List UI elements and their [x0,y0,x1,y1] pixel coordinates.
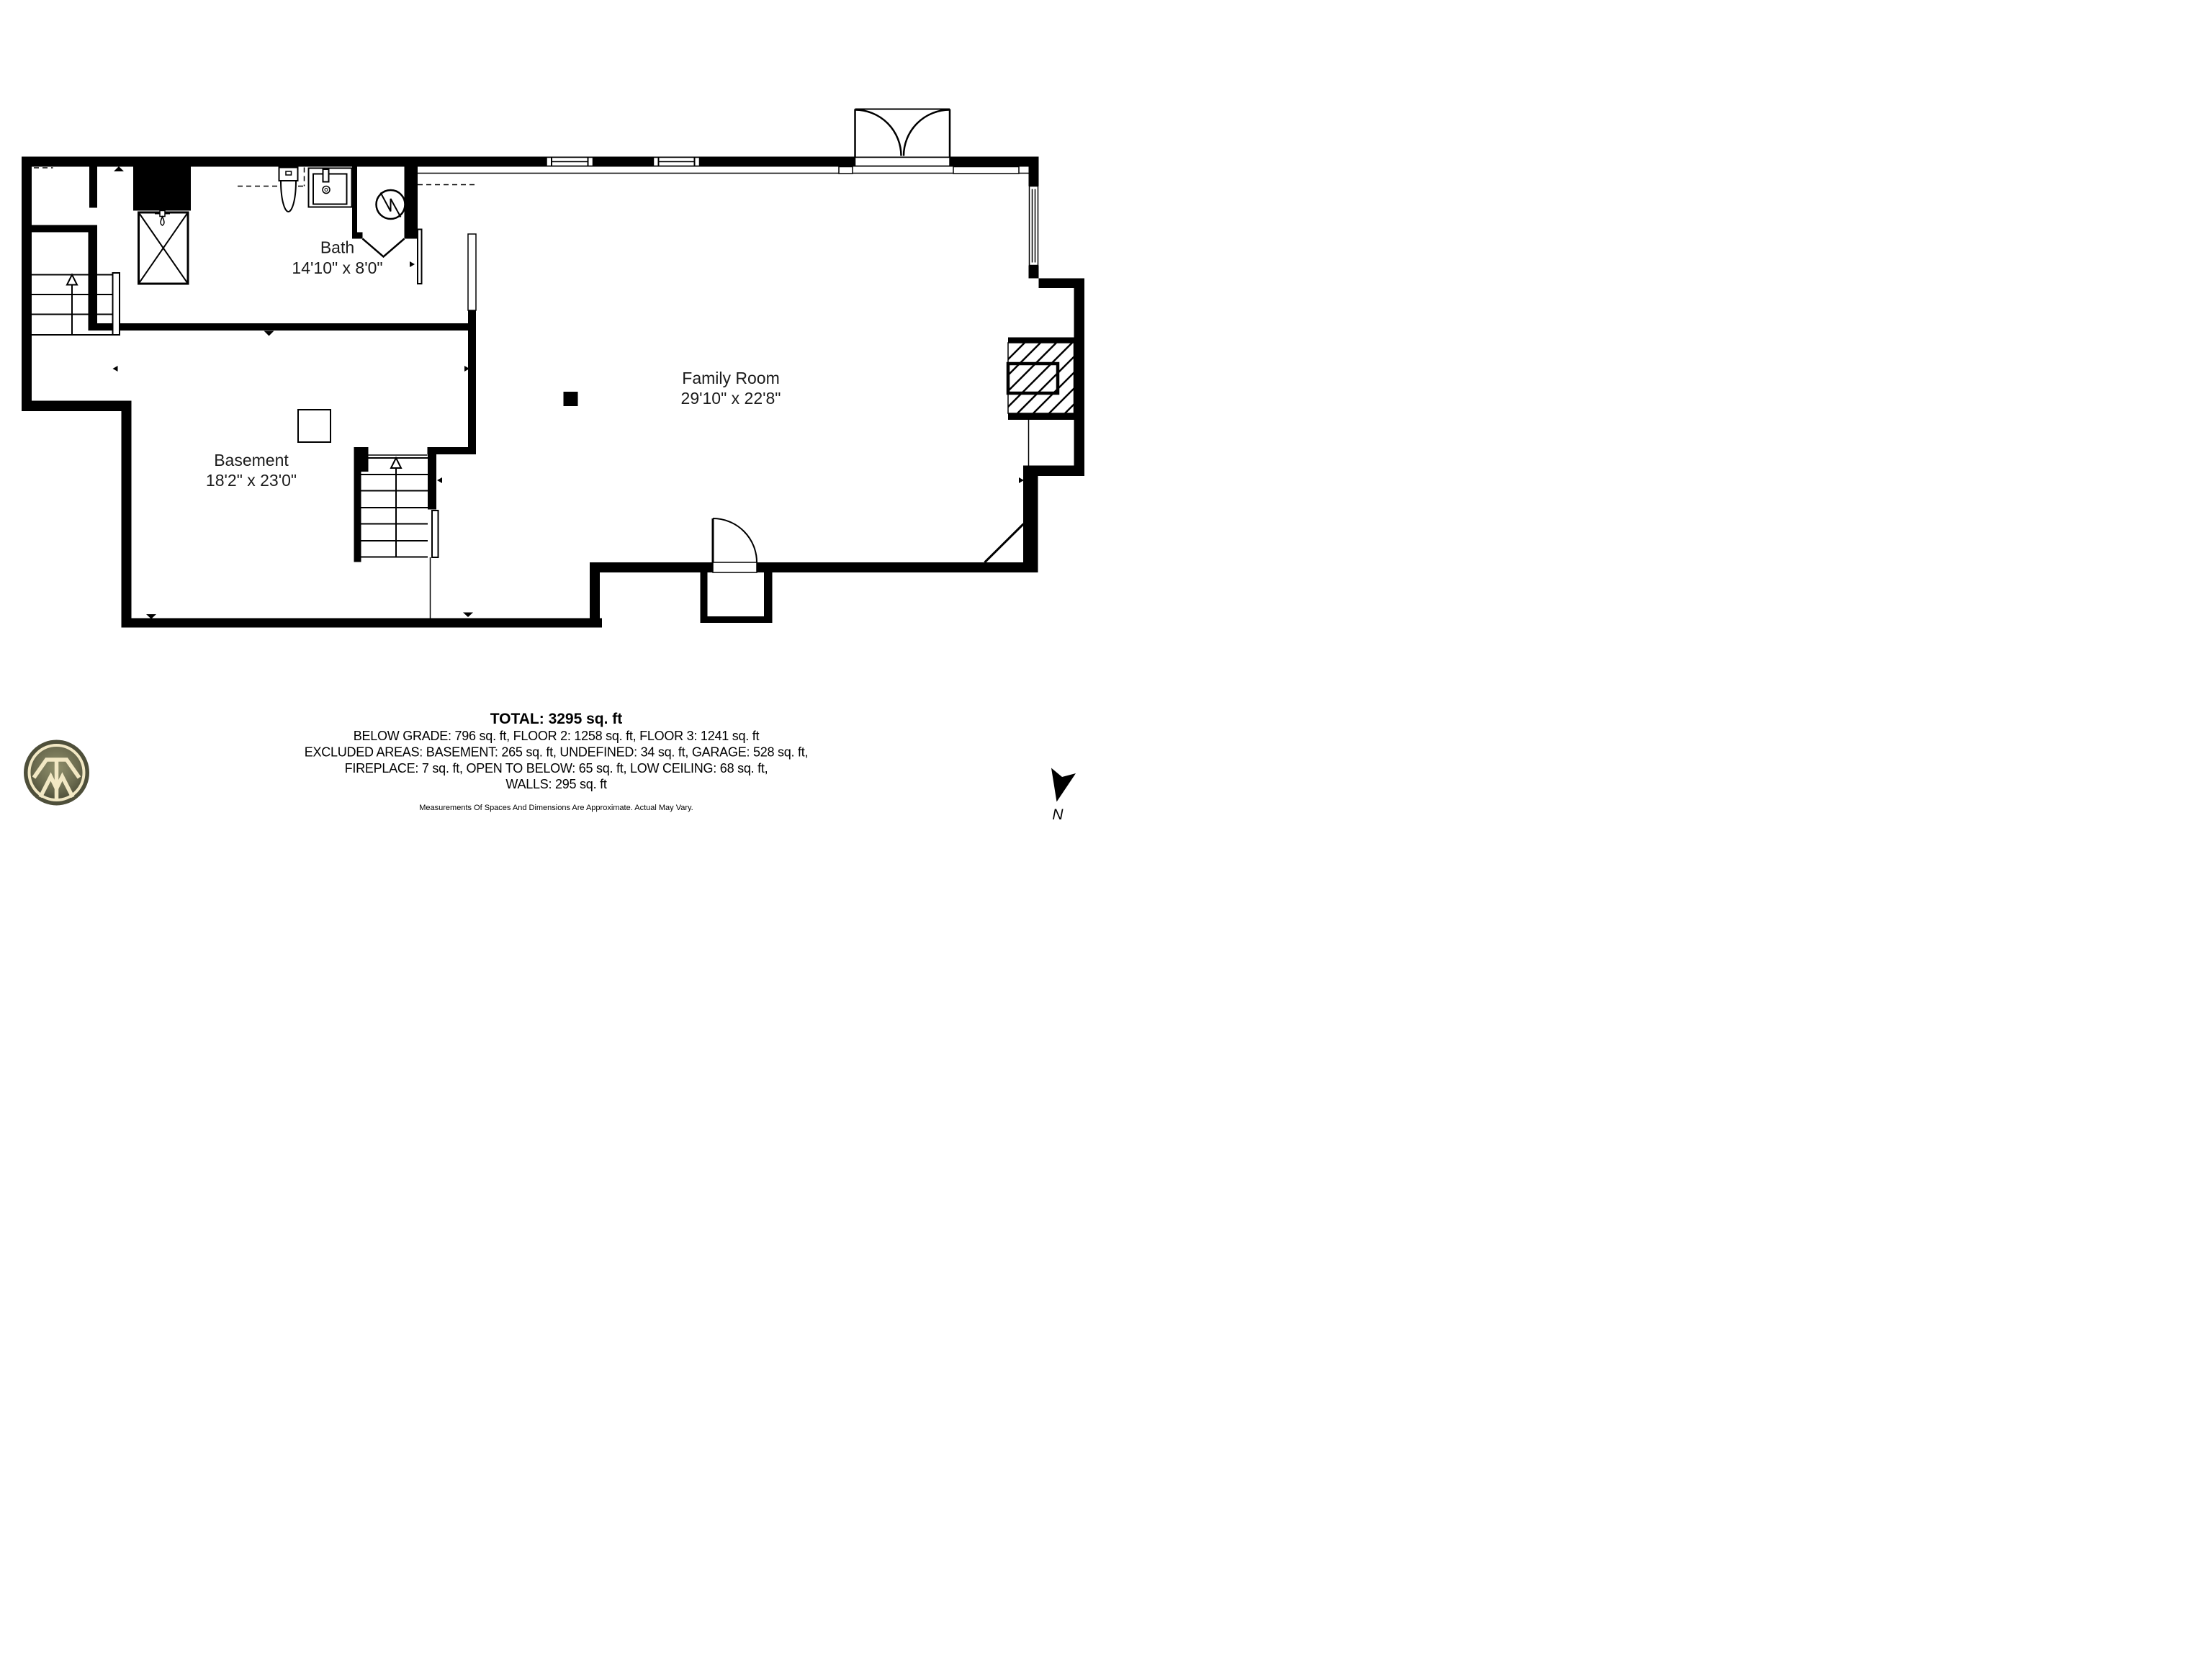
wall-stairs-left [354,472,361,562]
room-dims-basement: 18'2" x 23'0" [206,471,297,490]
wall-bottom-basement [122,619,603,628]
wall-stairs-right [428,447,436,510]
wall-east-lower [1023,476,1038,562]
wall-bath-west [89,232,98,331]
room-labels: Bath 14'10" x 8'0" Family Room 29'10" x … [206,238,781,490]
summary-features: FIREPLACE: 7 sq. ft, OPEN TO BELOW: 65 s… [345,761,768,775]
room-label-family-room: Family Room [682,369,779,387]
wall-vestibule-bottom [701,616,773,623]
wall-bath-south [89,323,477,331]
wall-fireplace-bottom [1008,413,1074,420]
room-label-basement: Basement [214,451,289,469]
marker-right [410,261,415,267]
basement-square-object [298,410,331,442]
marker-down [264,331,274,336]
wall-familyroom-south-right [757,562,1038,572]
wall-stairs-left-block [354,447,369,472]
summary-below-grade: BELOW GRADE: 796 sq. ft, FLOOR 2: 1258 s… [354,729,760,743]
north-label: N [1052,806,1064,823]
summary-excluded: EXCLUDED AREAS: BASEMENT: 265 sq. ft, UN… [305,745,809,760]
bath-door-leaf [418,230,422,284]
stairs-right-thin [432,511,439,557]
wall-right-outer [1074,279,1085,477]
room-label-bath: Bath [320,238,354,257]
wall-closet-east [89,167,97,208]
left-stairs-side [113,273,120,335]
wall-niche-bottom [1023,466,1084,477]
wall-divider-black [468,310,476,454]
room-dims-family-room: 29'10" x 22'8" [681,389,781,408]
door-swing-icon [713,518,757,562]
summary-block: TOTAL: 3295 sq. ft BELOW GRADE: 796 sq. … [305,711,809,812]
wall-left-step-h [32,401,132,412]
wall-vestibule-left [701,572,708,623]
room-dims-bath: 14'10" x 8'0" [292,258,382,277]
shower-icon [139,211,189,284]
wall-left-outer [22,157,32,412]
toilet-icon [279,168,298,212]
marker-down [463,613,473,618]
floor-plan-page: Bath 14'10" x 8'0" Family Room 29'10" x … [0,0,1106,829]
floor-plan-canvas: Bath 14'10" x 8'0" Family Room 29'10" x … [0,0,1106,829]
wall-chase-block [133,158,191,211]
wall-familyroom-south-left [590,562,713,572]
stairs-up-icon-center [361,458,428,557]
marker-up [114,166,124,171]
wall-vanity-right [352,167,357,235]
north-arrow-icon: N [1051,768,1076,824]
marker-left [113,366,118,372]
wall-vestibule-right [764,572,773,619]
wall-left-lower [122,401,132,628]
window-icon-east [1030,186,1038,266]
divider-open-rail [468,234,476,310]
wall-closet-south [30,225,97,233]
wall-east-mid [1029,266,1039,279]
marker-left [437,477,442,483]
wall-east-upper [1029,158,1039,186]
summary-disclaimer: Measurements Of Spaces And Dimensions Ar… [419,804,693,812]
window-icon [654,158,700,166]
water-heater-icon [363,190,405,257]
corner-diagonal [985,524,1024,563]
window-icon [547,158,593,166]
marker-right [1019,477,1024,483]
summary-walls: WALLS: 295 sq. ft [505,777,606,791]
familyroom-door-sill [713,562,757,572]
fireplace-post [564,392,578,406]
sink-icon [309,168,352,207]
wall-bath-east [405,158,418,239]
summary-total: TOTAL: 3295 sq. ft [490,711,623,727]
brand-logo-icon [27,742,87,803]
wall-fireplace-top [1008,338,1074,343]
